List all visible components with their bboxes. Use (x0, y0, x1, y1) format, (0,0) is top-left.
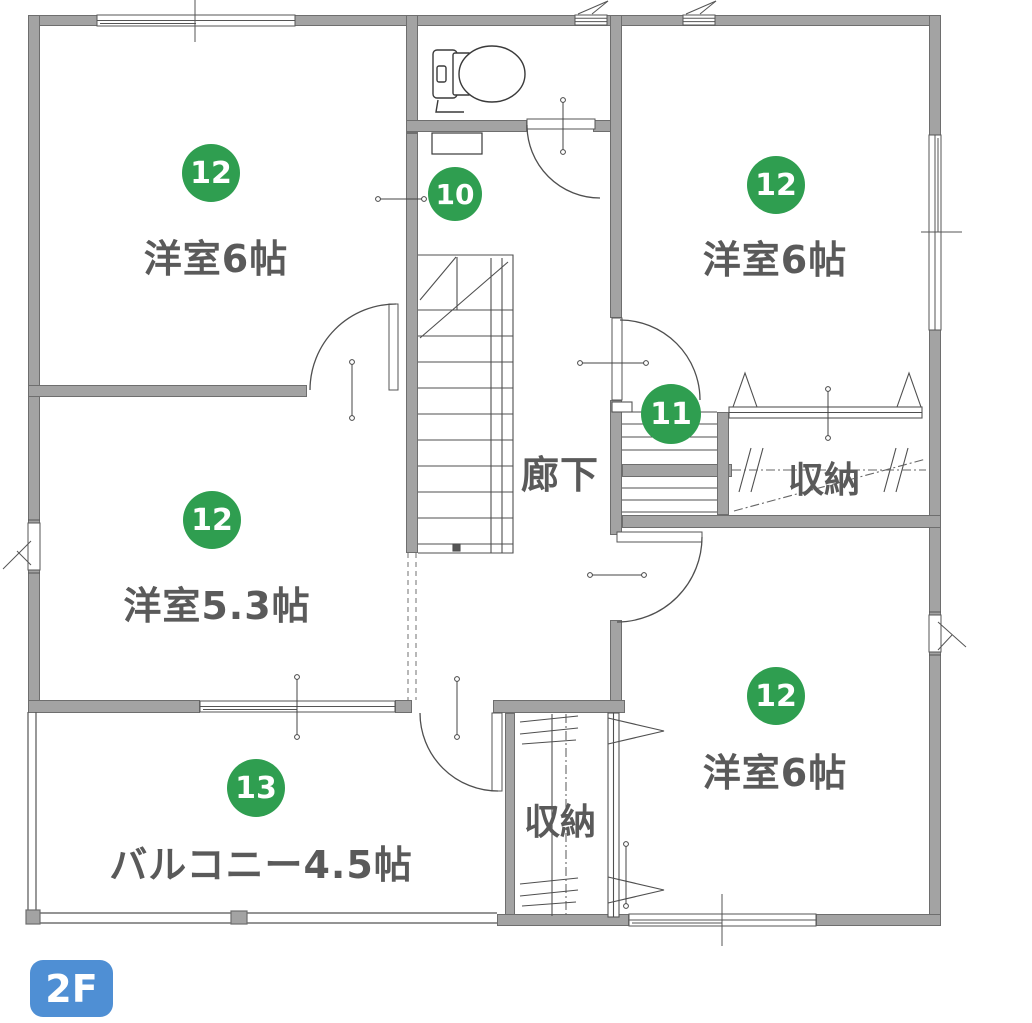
wall-top (28, 15, 940, 26)
door-bedroom-nw (310, 304, 398, 390)
wall-corridor-middle (610, 400, 622, 535)
wall-corridor-upper (610, 15, 622, 318)
bifold-door-icon (608, 718, 664, 744)
room-marker-bedroom-se: 12 (747, 667, 805, 725)
toilet-icon (433, 46, 525, 112)
wall-storage-bottom (622, 515, 941, 528)
wall-west-room-bottom (28, 700, 200, 713)
washstand-icon (432, 133, 482, 154)
room-label-bedroom-se: 洋室6帖 (625, 742, 925, 797)
wall-steps-middle (622, 464, 732, 477)
wall-right (929, 15, 941, 926)
room-marker-bedroom-nw: 12 (182, 144, 240, 202)
bifold-door-icon (897, 373, 921, 407)
wall-bottom-right-segment (816, 914, 941, 926)
door-bedroom-se (617, 532, 702, 622)
window-right-tall (921, 135, 962, 330)
room-label-bedroom-w: 洋室5.3帖 (37, 575, 397, 630)
room-marker-bedroom-ne: 12 (747, 156, 805, 214)
door-balcony (420, 713, 502, 791)
room-label-closet-east: 収納 (764, 451, 884, 503)
staircase (418, 255, 513, 553)
bifold-door-icon (733, 373, 757, 407)
room-marker-bedroom-w: 12 (183, 491, 241, 549)
floor-plan: 12 12 12 12 13 10 11 洋室6帖 洋室6帖 洋室5.3帖 洋室… (0, 0, 1032, 1023)
wall-bottom-left-segment (497, 914, 629, 926)
room-label-closet-south: 収納 (500, 793, 620, 845)
wall-toilet-bottom-left (406, 120, 527, 132)
window-southeast-bottom (629, 894, 816, 946)
wall-stairwell-left (406, 133, 418, 553)
window-west-room-bottom (200, 701, 395, 712)
room-label-bedroom-ne: 洋室6帖 (625, 229, 925, 284)
wall-corridor-lower (610, 620, 622, 705)
room-label-corridor: 廊下 (510, 444, 610, 499)
bifold-door-icon (608, 877, 664, 903)
wall-divider-northwest (28, 385, 307, 397)
wall-closet-south-top (493, 700, 625, 713)
room-marker-stairs: 11 (641, 384, 701, 444)
wall-toilet-left (406, 15, 418, 133)
room-label-bedroom-nw: 洋室6帖 (66, 228, 366, 283)
room-marker-balcony: 13 (227, 759, 285, 817)
room-label-balcony: バルコニー4.5帖 (61, 834, 461, 889)
door-toilet (527, 119, 600, 198)
wall-post-balcony-door (395, 700, 412, 713)
balcony-railing (26, 712, 497, 924)
floor-badge: 2F (30, 960, 113, 1017)
wall-storage-left (717, 412, 729, 515)
doors (310, 119, 702, 791)
corridor-dashed-boundary (408, 553, 416, 700)
room-marker-toilet: 10 (428, 167, 482, 221)
